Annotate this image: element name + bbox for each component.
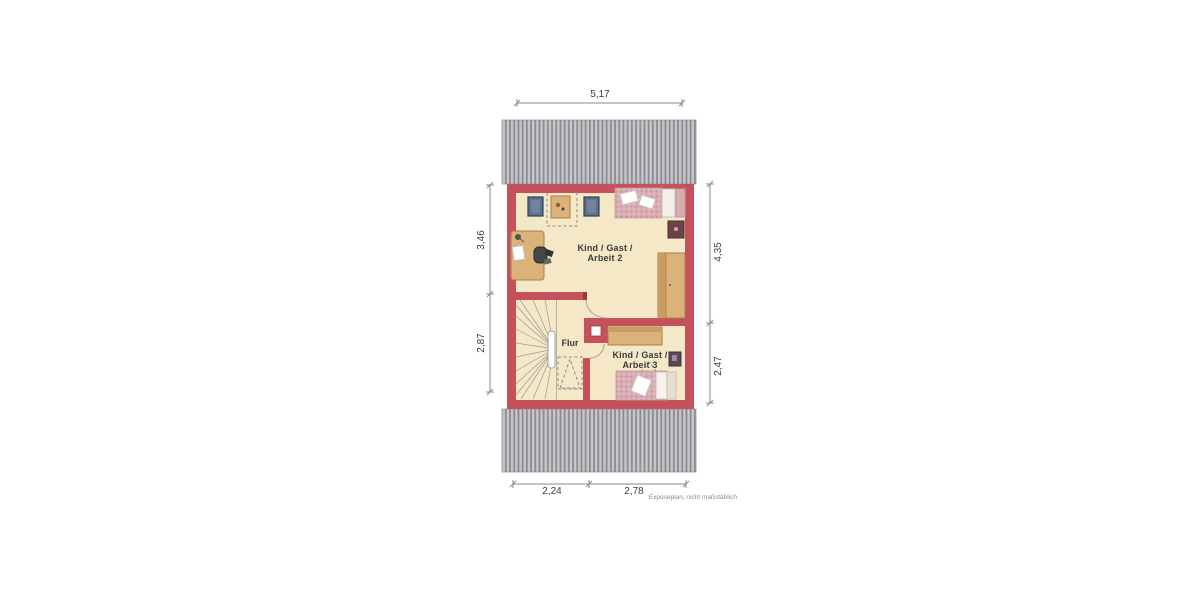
side-table xyxy=(551,196,570,218)
room3-label-line2: Arbeit 3 xyxy=(580,361,700,371)
dimension-bottom-left-label: 2,24 xyxy=(512,486,592,497)
dimension-left-upper-label: 3,46 xyxy=(476,224,488,256)
room3-label: Kind / Gast / Arbeit 3 xyxy=(580,351,700,370)
dimension-top-label: 5,17 xyxy=(550,89,650,100)
plan-footnote: Exposeplan, nicht maßstäblich xyxy=(617,494,737,501)
roof-bottom xyxy=(502,409,696,472)
armchair-left xyxy=(528,197,543,216)
hallway-label: Flur xyxy=(545,338,595,348)
armchair-right xyxy=(584,197,599,216)
room2-label-line2: Arbeit 2 xyxy=(545,254,665,264)
bed-room3 xyxy=(616,371,676,400)
dimension-left-lower-label: 2,87 xyxy=(476,327,488,359)
bed-room2 xyxy=(615,188,685,218)
floor-plan-canvas: 5,17 3,46 2,87 4,35 2,47 2,24 2,78 Kind … xyxy=(0,0,1200,600)
room2-label: Kind / Gast / Arbeit 2 xyxy=(545,244,665,263)
dimension-right-lower-label: 2,47 xyxy=(713,350,725,382)
roof-top xyxy=(502,120,696,184)
sideboard-room3 xyxy=(608,327,662,345)
handrail xyxy=(548,331,555,368)
dimension-right-upper-label: 4,35 xyxy=(713,236,725,268)
nightstand xyxy=(668,221,684,238)
